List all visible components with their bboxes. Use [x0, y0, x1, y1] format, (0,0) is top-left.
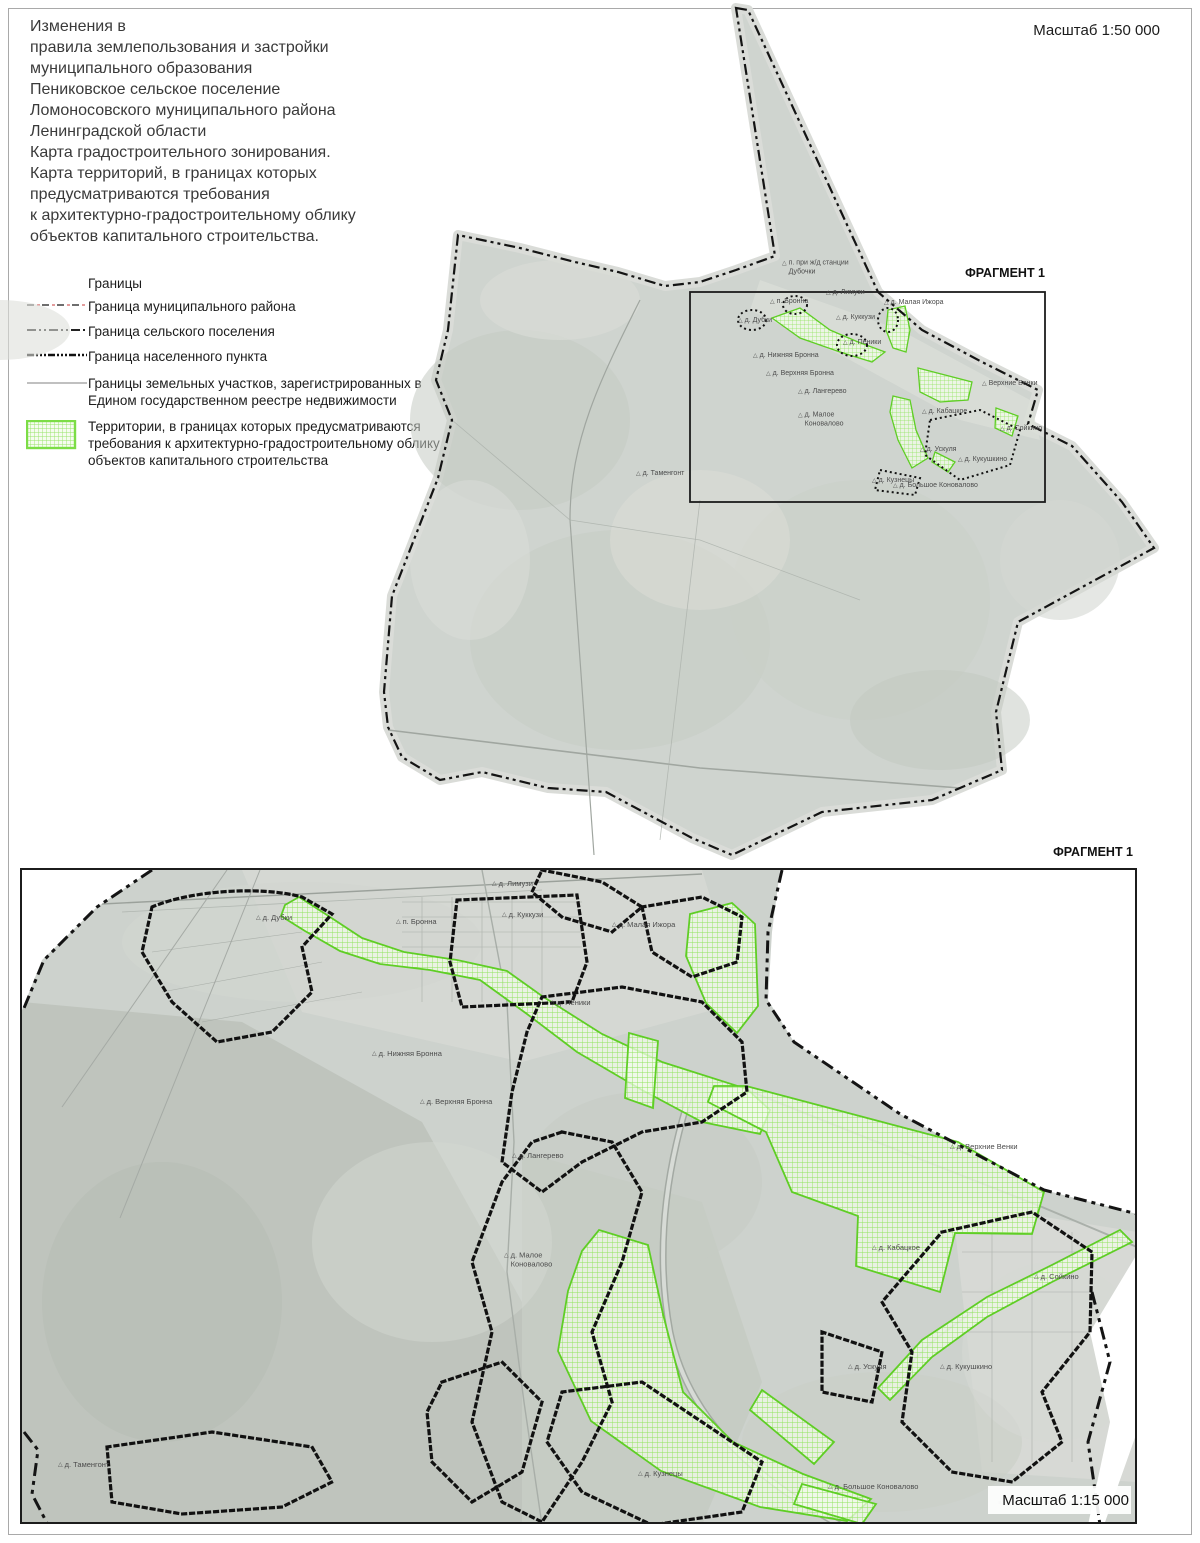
map-label: △д. Большое Коновалово — [828, 1483, 918, 1492]
fragment-callout-label: ФРАГМЕНТ 1 — [945, 266, 1045, 280]
locality-triangle-icon: △ — [766, 370, 771, 378]
locality-triangle-icon: △ — [502, 911, 507, 919]
locality-triangle-icon: △ — [893, 482, 898, 490]
map-label: △д. Кабацкое — [922, 408, 967, 417]
locality-triangle-icon: △ — [872, 1244, 877, 1252]
locality-triangle-icon: △ — [636, 470, 641, 478]
map-label: △д. Лангерево — [512, 1152, 564, 1161]
map-label: △д. Лангерево — [798, 388, 847, 397]
map-label: △п. Бронна — [396, 918, 437, 927]
map-label: △д. Верхняя Бронна — [420, 1098, 492, 1107]
fragment-map — [22, 870, 1135, 1522]
locality-triangle-icon: △ — [798, 388, 803, 396]
overview-territory — [0, 8, 1154, 855]
map-label: △д. Сойкино — [1034, 1273, 1079, 1282]
map-label: △д. Таменгонт — [58, 1461, 109, 1470]
locality-triangle-icon: △ — [828, 1483, 833, 1491]
locality-triangle-icon: △ — [982, 380, 987, 388]
locality-triangle-icon: △ — [843, 339, 848, 347]
map-label: △п. Бронна — [770, 298, 808, 307]
locality-triangle-icon: △ — [782, 260, 787, 268]
locality-triangle-icon: △ — [504, 1252, 509, 1260]
map-label: △д. Малая Ижора — [612, 921, 675, 930]
map-label: △д. Дубки — [738, 317, 772, 326]
map-label: △д. Ускуля — [920, 446, 956, 455]
locality-triangle-icon: △ — [550, 999, 555, 1007]
map-label: △д. Пеники — [843, 339, 881, 348]
map-label: △д. Малое Коновалово — [798, 412, 843, 429]
map-label: △д. Малая Ижора — [884, 299, 944, 308]
map-label: △д. Кузнецы — [638, 1470, 683, 1479]
map-label: △д. Куккузи — [502, 911, 543, 920]
map-label: △д. Малое Коновалово — [504, 1252, 552, 1269]
map-label: △д. Лимузи — [492, 880, 533, 889]
locality-triangle-icon: △ — [372, 1050, 377, 1058]
locality-triangle-icon: △ — [1000, 425, 1005, 433]
map-label: △д. Таменгонт — [636, 470, 684, 479]
map-label: △д. Большое Коновалово — [893, 482, 978, 491]
locality-triangle-icon: △ — [940, 1363, 945, 1371]
map-label: △д. Куккузи — [836, 314, 875, 323]
map-label: △д. Нижняя Бронна — [372, 1050, 442, 1059]
map-label: △д. Кукушкино — [958, 456, 1007, 465]
map-label: △д. Сойкино — [1000, 425, 1042, 434]
locality-triangle-icon: △ — [920, 446, 925, 454]
locality-triangle-icon: △ — [884, 299, 889, 307]
map-label: △д. Кукушкино — [940, 1363, 992, 1372]
map-label: △д. Верхние Венки — [950, 1143, 1018, 1152]
locality-triangle-icon: △ — [836, 314, 841, 322]
overview-map — [0, 0, 1200, 868]
map-label: △п. при ж/д станции Дубочки — [782, 260, 849, 277]
map-sheet: Изменения в правила землепользования и з… — [0, 0, 1200, 1543]
locality-triangle-icon: △ — [958, 456, 963, 464]
locality-triangle-icon: △ — [396, 918, 401, 926]
map-label: △Верхние Венки — [982, 380, 1038, 389]
map-label: △д. Пеники — [550, 999, 591, 1008]
locality-triangle-icon: △ — [420, 1098, 425, 1106]
map-label: △д. Кабацкое — [872, 1244, 920, 1253]
locality-triangle-icon: △ — [638, 1470, 643, 1478]
map-label: △д. Дубки — [256, 914, 292, 923]
map-label: △д. Нижняя Бронна — [753, 352, 819, 361]
locality-triangle-icon: △ — [826, 289, 831, 297]
locality-triangle-icon: △ — [770, 298, 775, 306]
map-label: △д. Лимузи — [826, 289, 865, 298]
locality-triangle-icon: △ — [1034, 1273, 1039, 1281]
fragment-title-label: ФРАГМЕНТ 1 — [1013, 845, 1133, 859]
locality-triangle-icon: △ — [58, 1461, 63, 1469]
map-label: △д. Верхняя Бронна — [766, 370, 834, 379]
fragment-scale-label: Масштаб 1:15 000 — [988, 1486, 1131, 1514]
locality-triangle-icon: △ — [256, 914, 261, 922]
locality-triangle-icon: △ — [753, 352, 758, 360]
locality-triangle-icon: △ — [872, 477, 877, 485]
locality-triangle-icon: △ — [950, 1143, 955, 1151]
locality-triangle-icon: △ — [492, 880, 497, 888]
locality-triangle-icon: △ — [512, 1152, 517, 1160]
locality-triangle-icon: △ — [612, 921, 617, 929]
locality-triangle-icon: △ — [798, 412, 803, 420]
fragment-map-frame — [20, 868, 1137, 1524]
locality-triangle-icon: △ — [738, 317, 743, 325]
map-label: △д. Ускуля — [848, 1363, 887, 1372]
locality-triangle-icon: △ — [848, 1363, 853, 1371]
locality-triangle-icon: △ — [922, 408, 927, 416]
